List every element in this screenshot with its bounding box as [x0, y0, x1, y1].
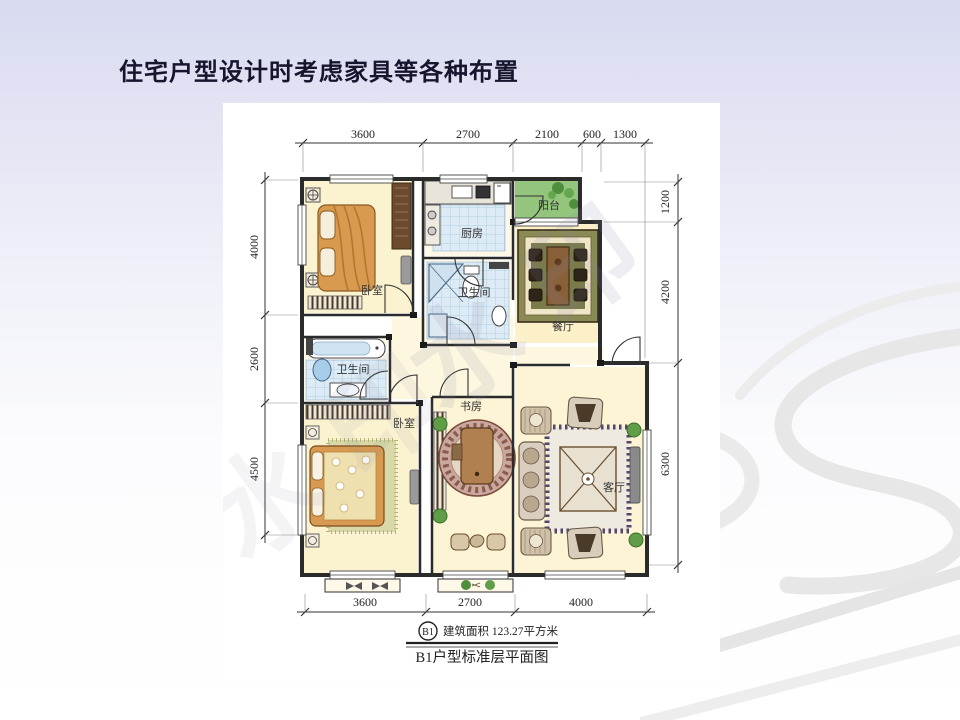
floorplan-image: 卧室 厨房 阳台 卫生间 餐厅 卫生间 卧室 书房 客厅 36: [223, 103, 720, 683]
label-living: 客厅: [603, 480, 625, 494]
presentation-slide: 住宅户型设计时考虑家具等各种布置: [0, 0, 960, 720]
dim-right-3: 6300: [658, 452, 672, 476]
dim-right-1: 1200: [658, 190, 672, 214]
dim-left-2: 2600: [247, 347, 261, 371]
dim-top-1: 3600: [351, 127, 375, 141]
area-text: 建筑面积 123.27平方米: [443, 624, 558, 638]
dim-top-5: 1300: [613, 127, 637, 141]
plan-legend: B1 建筑面积 123.27平方米 B1户型标准层平面图: [406, 622, 558, 666]
dim-top-3: 2100: [535, 127, 559, 141]
label-bedroom1: 卧室: [361, 283, 383, 297]
dim-left-1: 4000: [247, 235, 261, 259]
dim-top-2: 2700: [456, 127, 480, 141]
plan-caption: B1户型标准层平面图: [416, 649, 549, 666]
slide-title: 住宅户型设计时考虑家具等各种布置: [119, 52, 679, 87]
dim-bottom-3: 4000: [569, 595, 593, 609]
dim-bottom-2: 2700: [458, 595, 482, 609]
unit-badge: B1: [422, 627, 434, 638]
label-kitchen: 厨房: [461, 227, 483, 240]
dim-bottom-1: 3600: [353, 595, 377, 609]
dim-top-4: 600: [583, 127, 601, 141]
